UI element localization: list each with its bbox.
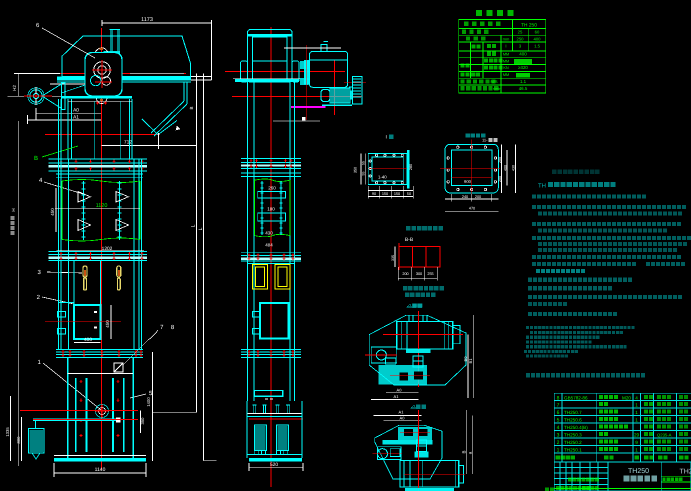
svg-text:200: 200 [498, 176, 502, 182]
svg-text:Q235-A: Q235-A [657, 433, 672, 438]
svg-text:484: 484 [265, 243, 273, 248]
svg-text:520: 520 [270, 462, 278, 468]
svg-text:H2: H2 [12, 85, 17, 91]
svg-text:150: 150 [394, 192, 400, 196]
svg-text:180: 180 [267, 207, 275, 212]
svg-text:1: 1 [635, 403, 638, 408]
svg-text:11-: 11- [482, 138, 488, 143]
svg-text:1.1: 1.1 [520, 79, 527, 84]
svg-text:5: 5 [557, 418, 560, 424]
svg-text:6: 6 [557, 410, 560, 416]
svg-text:55: 55 [362, 161, 366, 165]
svg-text:400: 400 [519, 52, 527, 57]
svg-text:GB5782-86: GB5782-86 [564, 396, 588, 401]
svg-text:TH250: TH250 [628, 468, 649, 475]
svg-text:9: 9 [635, 440, 638, 445]
svg-text:260: 260 [268, 186, 276, 191]
svg-text:255: 255 [427, 272, 433, 276]
svg-text:1400: 1400 [146, 397, 151, 407]
svg-text:TH250.6: TH250.6 [564, 418, 582, 423]
svg-text:4: 4 [557, 425, 560, 431]
svg-text:TH2: TH2 [680, 468, 691, 475]
svg-text:7: 7 [557, 403, 560, 409]
svg-text:1202: 1202 [102, 246, 113, 252]
svg-text:300: 300 [416, 272, 422, 276]
svg-text:r/min: r/min [493, 87, 501, 91]
svg-text:1: 1 [557, 448, 560, 454]
svg-text:TH250.7: TH250.7 [564, 410, 582, 415]
svg-text:55: 55 [362, 172, 366, 176]
svg-text:400: 400 [504, 165, 508, 171]
svg-text:430: 430 [512, 165, 516, 171]
svg-text:KN: KN [503, 66, 509, 70]
svg-text:712: 712 [124, 140, 133, 146]
svg-text:400: 400 [84, 337, 92, 343]
svg-text:1.5: 1.5 [534, 44, 540, 49]
svg-text:l: l [506, 44, 507, 49]
svg-text:A1: A1 [394, 394, 400, 399]
svg-text:400: 400 [534, 37, 542, 42]
svg-text:M/S: M/S [490, 79, 497, 84]
svg-text:B: B [34, 155, 38, 162]
svg-text:50: 50 [407, 192, 411, 196]
svg-text:A0: A0 [397, 387, 403, 392]
svg-text:A1: A1 [73, 115, 79, 121]
svg-text:B: B [462, 450, 467, 453]
svg-text:B-B: B-B [405, 237, 414, 243]
svg-text:H: H [11, 208, 16, 211]
svg-text:29: 29 [634, 433, 640, 438]
svg-text:90: 90 [372, 192, 376, 196]
svg-text:MM: MM [503, 73, 509, 77]
svg-text:335: 335 [391, 255, 395, 261]
svg-text:≥320: ≥320 [518, 65, 528, 70]
svg-text:280: 280 [409, 164, 413, 170]
svg-text:1: 1 [635, 410, 638, 415]
svg-text:25: 25 [518, 30, 523, 35]
svg-text:L: L [191, 224, 197, 227]
svg-text:200: 200 [498, 157, 502, 163]
svg-text:mm: mm [503, 37, 510, 42]
svg-text:350: 350 [140, 417, 145, 425]
svg-text:1120: 1120 [96, 203, 108, 209]
svg-text:TH: TH [538, 183, 546, 190]
svg-text:430: 430 [265, 231, 273, 236]
svg-text:A1: A1 [399, 410, 405, 415]
svg-text:150: 150 [382, 192, 388, 196]
svg-text:1: 1 [635, 418, 638, 423]
svg-text:450: 450 [105, 320, 110, 328]
svg-text:200: 200 [402, 272, 408, 276]
svg-text:1173: 1173 [141, 17, 153, 23]
svg-text:1140: 1140 [95, 467, 106, 473]
svg-text:A0: A0 [400, 415, 406, 420]
svg-text:2: 2 [557, 440, 560, 446]
svg-text:TH 250: TH 250 [521, 23, 537, 29]
svg-text:MM: MM [503, 53, 509, 57]
svg-text:B1: B1 [468, 358, 473, 364]
svg-text:450: 450 [50, 208, 55, 216]
svg-text:250: 250 [517, 37, 525, 42]
svg-text:1-40: 1-40 [378, 175, 387, 180]
svg-text:3: 3 [557, 433, 560, 439]
svg-text:B: B [189, 106, 194, 109]
svg-text:4: 4 [635, 396, 638, 401]
svg-text:TH250.1: TH250.1 [564, 448, 582, 453]
svg-text:A0: A0 [73, 108, 79, 114]
svg-text:M20: M20 [622, 396, 631, 401]
svg-text:900: 900 [464, 179, 472, 184]
svg-text:200: 200 [475, 195, 481, 199]
svg-text:350: 350 [354, 167, 358, 173]
svg-text:MM: MM [503, 60, 509, 64]
svg-text:I: I [386, 135, 387, 141]
svg-text:TH250.2: TH250.2 [564, 440, 582, 445]
svg-text:46.5: 46.5 [519, 86, 528, 91]
svg-text:1335: 1335 [5, 427, 10, 437]
svg-text:470: 470 [469, 207, 475, 211]
svg-text:TH250.3: TH250.3 [564, 433, 582, 438]
svg-text:TH250.4(B): TH250.4(B) [564, 425, 588, 430]
svg-text:1: 1 [635, 448, 638, 453]
svg-text:60: 60 [535, 30, 540, 35]
svg-text:240: 240 [462, 195, 468, 199]
svg-text:L: L [198, 227, 204, 230]
svg-text:8: 8 [557, 396, 560, 402]
